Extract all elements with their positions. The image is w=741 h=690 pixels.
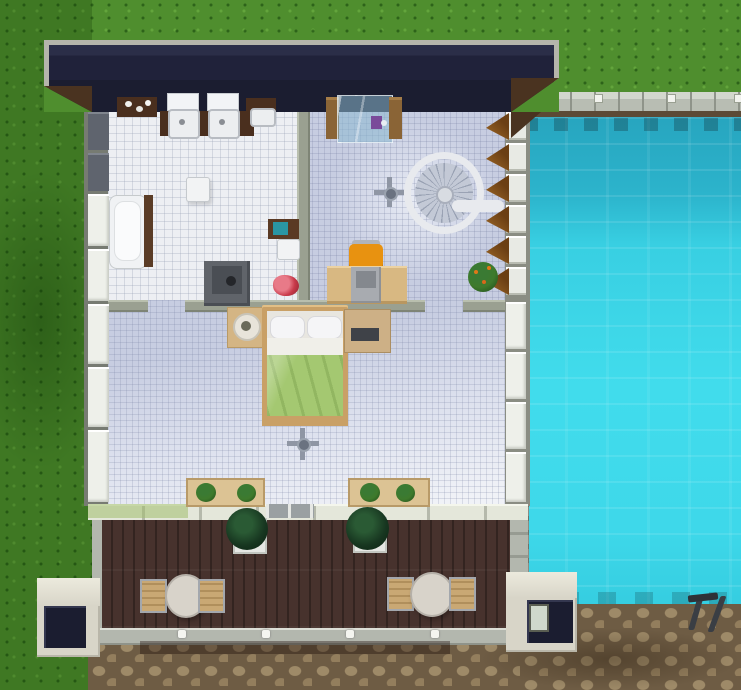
topiary-bush <box>226 508 268 550</box>
porch-roof-slope <box>37 578 100 606</box>
patio-chair[interactable] <box>449 577 476 611</box>
window-east[interactable] <box>506 267 526 295</box>
clothes-pile[interactable] <box>273 275 299 296</box>
plant-flower <box>487 266 491 270</box>
staircase-center-pole <box>436 186 454 204</box>
railing-post <box>178 630 186 638</box>
deck-shadow <box>140 641 450 654</box>
window-east[interactable] <box>506 236 526 264</box>
basin[interactable] <box>250 108 276 127</box>
window-west[interactable] <box>88 249 109 301</box>
coping-post <box>594 94 603 103</box>
wood-deck[interactable] <box>100 512 528 634</box>
coping-post <box>734 94 741 103</box>
window-west[interactable] <box>88 367 109 427</box>
patio-table[interactable] <box>410 572 454 617</box>
interior-wall-vertical <box>297 110 310 308</box>
plant-flower <box>474 270 478 274</box>
toilet-bowl <box>226 276 236 286</box>
computer-screen <box>356 271 376 288</box>
tub-wood-deck <box>144 195 153 267</box>
window-east[interactable] <box>506 143 526 171</box>
plant-flower <box>482 280 486 284</box>
lamp-shade-center <box>241 321 251 331</box>
potted-plant[interactable] <box>468 262 498 292</box>
soap-dish <box>145 100 151 106</box>
shower-frame <box>389 97 402 139</box>
sink-drain <box>219 119 225 125</box>
planter-plant <box>396 484 415 502</box>
staircase-landing-rail <box>452 200 504 212</box>
topiary-bush <box>346 507 389 550</box>
window-east[interactable] <box>506 352 526 399</box>
interior-wall-segment <box>463 300 510 312</box>
window-west[interactable] <box>88 430 109 502</box>
pool-water[interactable] <box>524 117 741 607</box>
window-east[interactable] <box>506 205 526 233</box>
sill-green-tint <box>88 504 188 518</box>
window-east[interactable] <box>506 174 526 202</box>
porch-roof-southwest <box>44 606 86 648</box>
glass-shower[interactable] <box>337 95 393 143</box>
towel-stack[interactable] <box>277 239 300 260</box>
soap-dish <box>136 106 143 112</box>
porch-roof-slope <box>506 572 577 598</box>
planter-plant <box>237 484 256 502</box>
railing-post <box>346 630 354 638</box>
bath-mat[interactable] <box>186 177 210 202</box>
interior-wall-segment <box>108 300 148 312</box>
game-viewport <box>0 0 741 690</box>
pillow <box>270 316 305 339</box>
deck-sliding-door[interactable] <box>266 504 314 518</box>
window-east[interactable] <box>506 302 526 349</box>
window-west[interactable] <box>88 304 109 364</box>
patio-chair[interactable] <box>198 579 225 613</box>
stereo[interactable] <box>351 328 379 341</box>
window-east[interactable] <box>506 402 526 449</box>
ceiling-fan[interactable] <box>384 187 398 201</box>
shelf-decor <box>273 222 288 235</box>
window-west[interactable] <box>88 194 109 246</box>
planter-plant <box>196 483 216 502</box>
porch-window <box>529 604 549 632</box>
railing-post <box>262 630 270 638</box>
window-east[interactable] <box>506 452 526 502</box>
window-west[interactable] <box>88 112 109 150</box>
railing-post <box>431 630 439 638</box>
window-west[interactable] <box>88 153 109 191</box>
pillow <box>307 316 342 339</box>
bed-blanket <box>267 355 343 416</box>
pool-ripples-top <box>524 118 741 131</box>
sink-drain <box>179 119 185 125</box>
shower-drain <box>381 120 387 126</box>
ceiling-fan[interactable] <box>297 438 311 452</box>
coping-post <box>667 94 676 103</box>
patio-chair[interactable] <box>140 579 167 613</box>
bed-footboard <box>262 416 348 426</box>
bathtub-basin <box>114 201 141 261</box>
soap-dish <box>125 101 132 107</box>
planter-plant <box>360 483 380 502</box>
